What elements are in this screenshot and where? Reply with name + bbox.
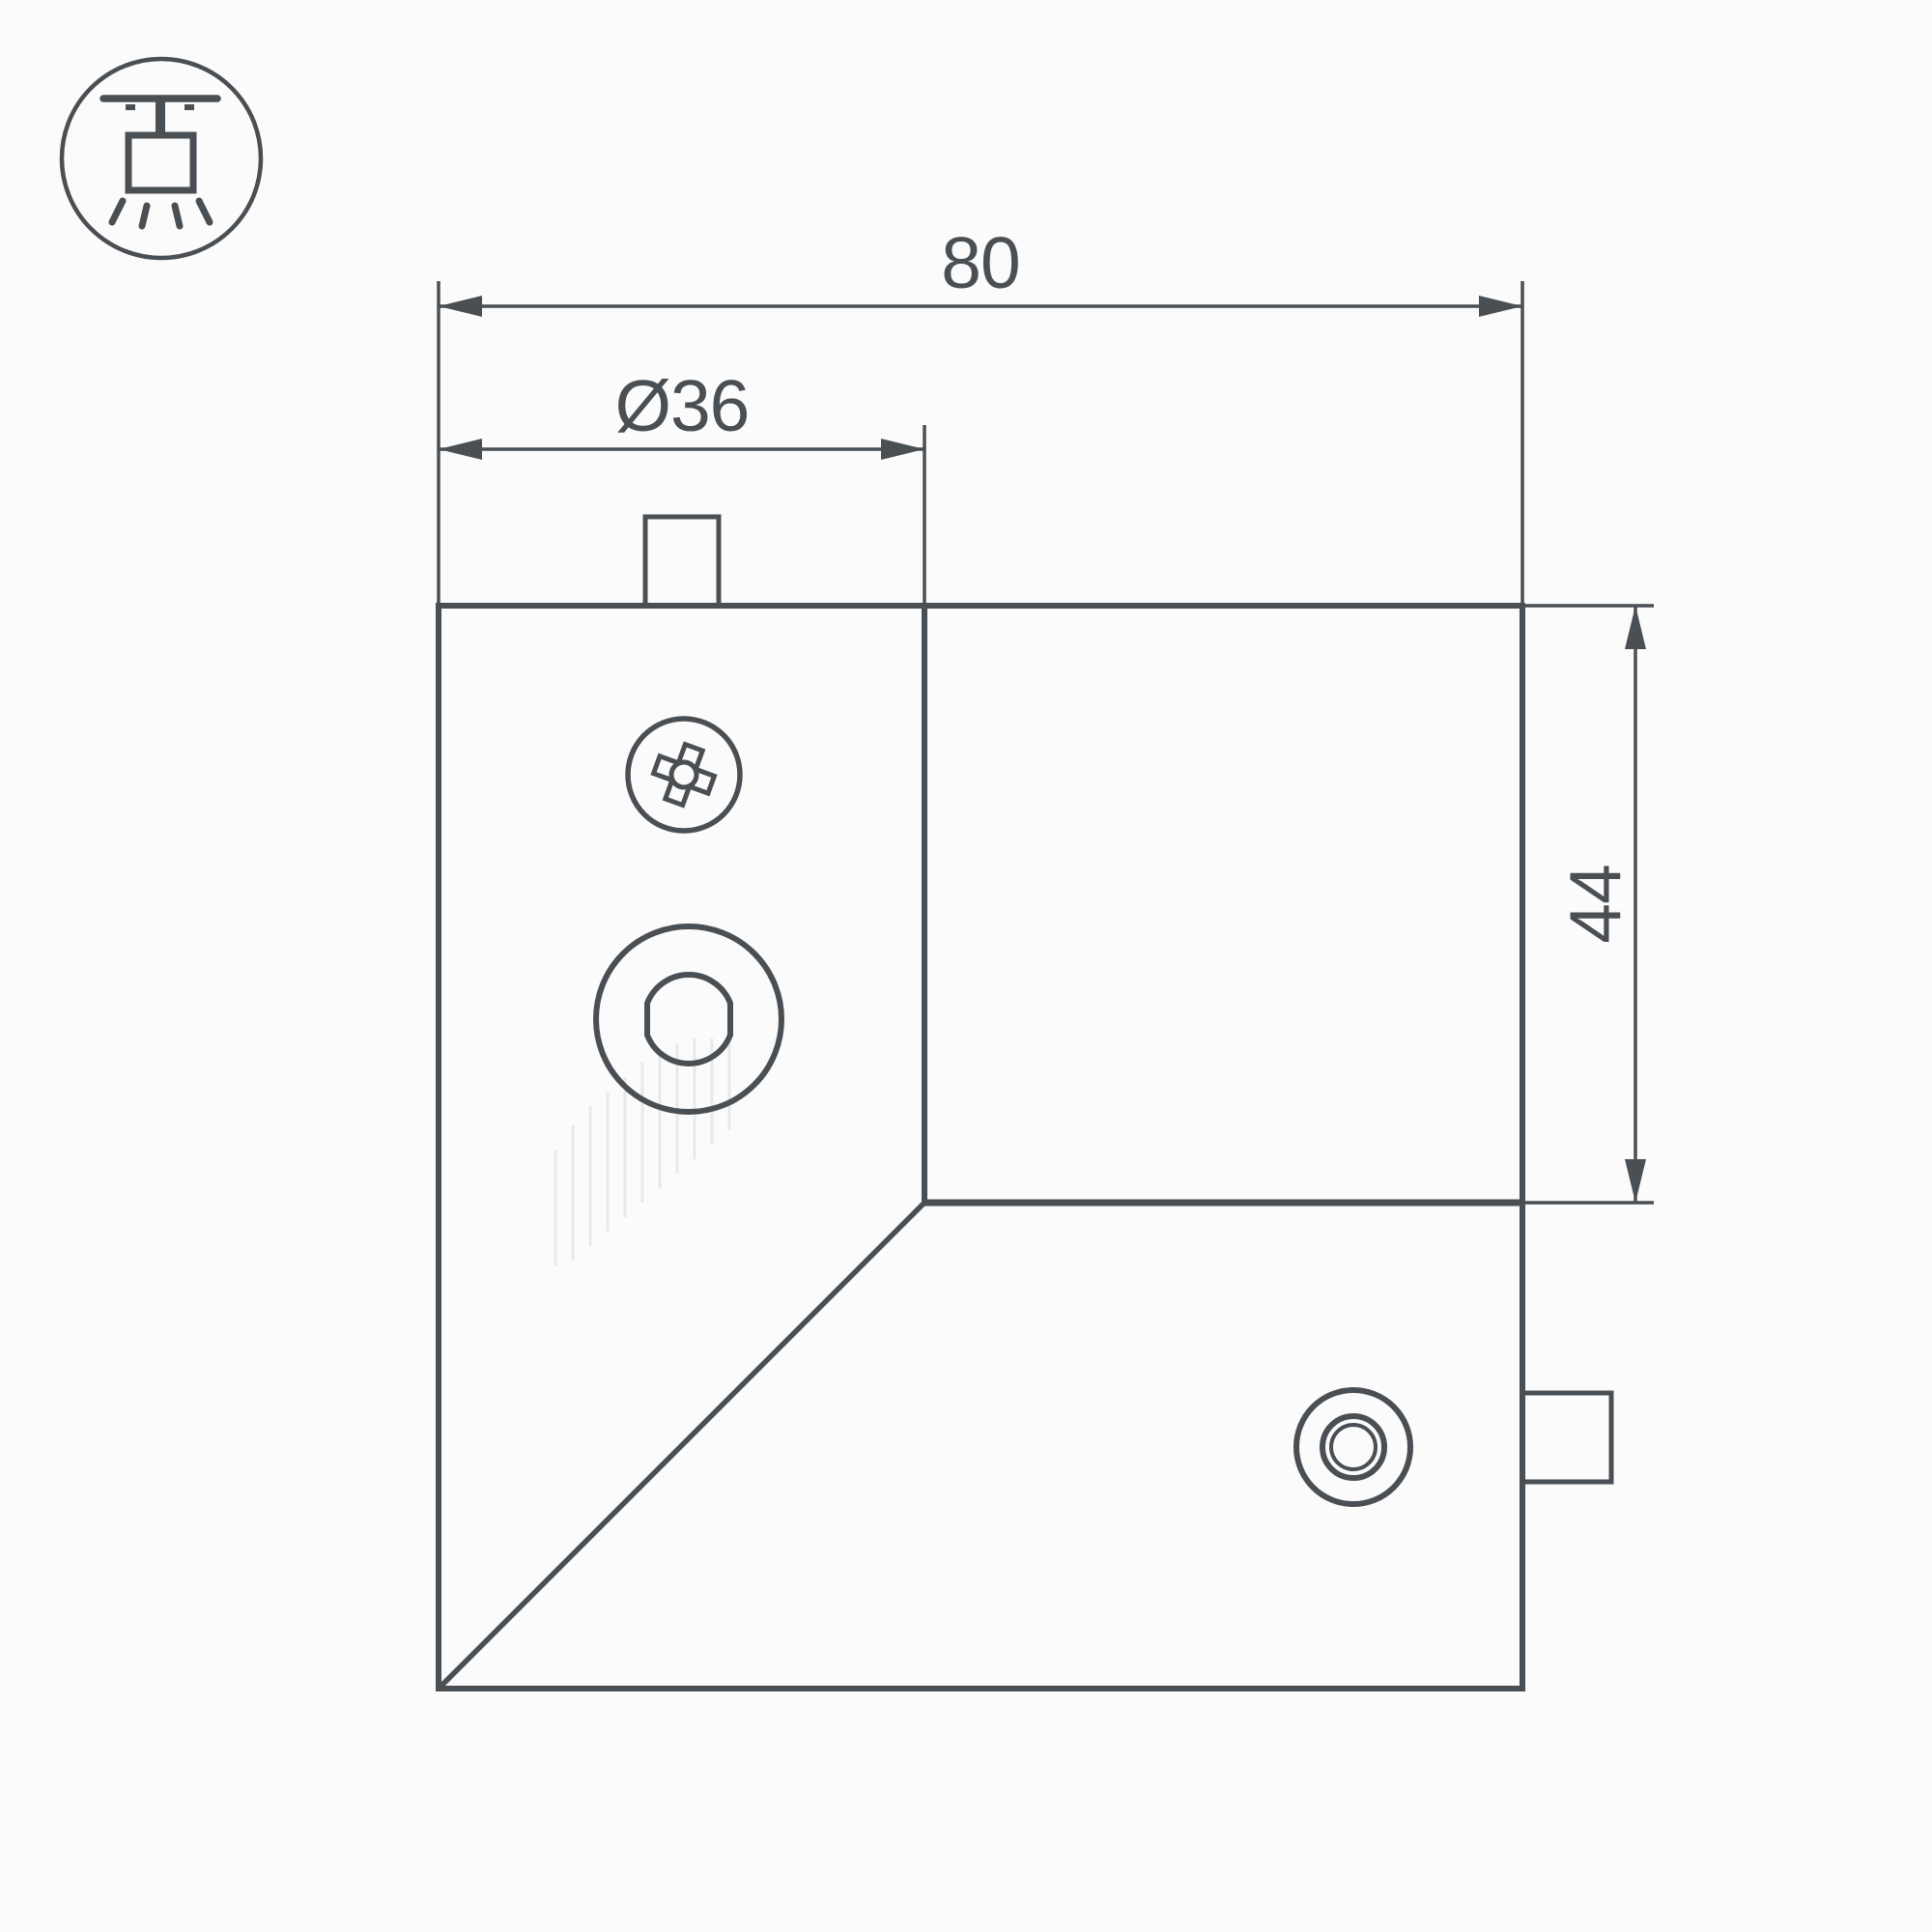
top-connector-stub: [645, 517, 719, 608]
dimension-height: 44: [1524, 606, 1654, 1203]
height-dimension-label: 44: [1554, 865, 1635, 943]
dimension-width: 80: [439, 222, 1522, 606]
phillips-center-hole: [671, 762, 696, 787]
icon-light-ray: [175, 206, 180, 226]
hex-screw-head: [596, 926, 781, 1112]
icon-light-ray: [142, 206, 147, 226]
arrowhead-left: [439, 296, 482, 317]
arrowhead-bottom: [1625, 1159, 1646, 1203]
phillips-screw: [628, 719, 740, 831]
icon-light-ray: [199, 201, 210, 222]
width-dimension-label: 80: [941, 222, 1019, 303]
icon-circle-border: [62, 59, 261, 258]
arrowhead-left: [439, 439, 482, 460]
arrowhead-right: [1479, 296, 1522, 317]
arrowhead-top: [1625, 606, 1646, 649]
side-pivot-screw: [1296, 1390, 1410, 1504]
arrowhead-right: [881, 439, 924, 460]
miter-diagonal: [439, 1203, 924, 1689]
technical-drawing: 80 Ø36 44: [0, 0, 1932, 1932]
diameter-dimension-label: Ø36: [615, 365, 750, 446]
hex-socket-screw: [596, 926, 781, 1112]
icon-light-ray: [112, 201, 123, 222]
dimension-diameter: Ø36: [439, 365, 924, 606]
ceiling-mount-icon: [62, 59, 261, 258]
pivot-screw-outer-ring: [1296, 1390, 1410, 1504]
pivot-screw-inner-ring: [1331, 1425, 1376, 1469]
hex-socket-hole: [647, 975, 730, 1064]
icon-fixture-square: [128, 135, 193, 190]
side-connector-stub: [1520, 1393, 1611, 1482]
shading-hatch: [555, 1038, 729, 1265]
ceiling-light-icon: [103, 99, 217, 226]
connector-body: [439, 517, 1611, 1689]
